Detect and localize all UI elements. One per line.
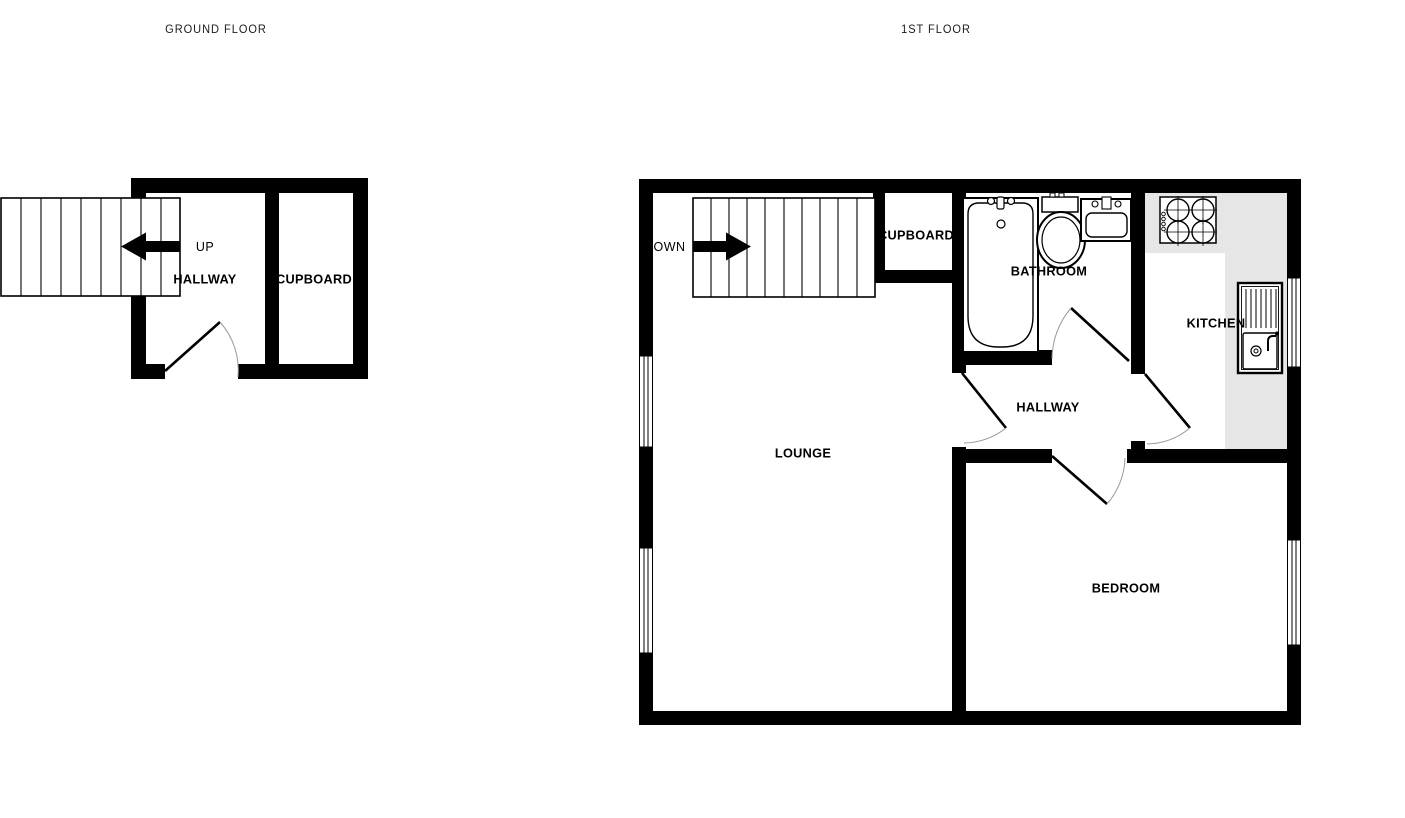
room-label-bedroom: BEDROOM: [1092, 581, 1161, 596]
window-icon: [640, 548, 653, 653]
wall: [952, 350, 966, 373]
wall: [353, 178, 368, 379]
wall: [639, 653, 653, 725]
wall: [952, 447, 966, 711]
door-leaf: [165, 322, 220, 371]
door-leaf: [1052, 456, 1107, 504]
room-label-ground-hallway: HALLWAY: [173, 272, 236, 287]
door-leaf: [1071, 308, 1129, 361]
room-label-first-cupboard: CUPBOARD: [878, 228, 954, 243]
window-icon: [640, 356, 653, 447]
wall: [131, 364, 165, 379]
door-leaf: [962, 373, 1006, 428]
hob-icon: [1160, 196, 1217, 246]
wall: [238, 364, 368, 379]
window-icon: [1288, 278, 1301, 367]
room-label-lounge: LOUNGE: [775, 446, 831, 461]
stairs-up-label: UP: [196, 240, 214, 254]
wall: [873, 270, 966, 283]
door-arc: [1147, 428, 1190, 444]
wall: [639, 711, 1301, 725]
first-floor-plan: [639, 179, 1301, 725]
bathroom-door: [1052, 308, 1129, 361]
first-floor-title: 1ST FLOOR: [901, 24, 971, 36]
floorplan-canvas: DOWN: [0, 0, 1405, 818]
floorplan-drawing: [0, 0, 1405, 818]
stairs-down-icon: [693, 198, 875, 297]
window-icon: [1288, 540, 1301, 645]
door-arc: [1052, 308, 1071, 359]
door-arc: [220, 322, 238, 377]
door-arc: [964, 428, 1006, 443]
toilet-icon: [1037, 193, 1085, 268]
room-label-ground-cupboard: CUPBOARD: [276, 272, 352, 287]
stairs-up-icon: [1, 198, 180, 296]
kitchen-door: [1145, 374, 1190, 444]
wall: [131, 178, 368, 193]
wall: [639, 179, 653, 356]
door-leaf: [1145, 374, 1190, 428]
door-arc: [1107, 458, 1125, 504]
room-label-kitchen: KITCHEN: [1187, 316, 1246, 331]
ground-floor-title: GROUND FLOOR: [165, 24, 267, 36]
wall: [952, 449, 1052, 463]
room-label-bathroom: BATHROOM: [1011, 264, 1087, 279]
lounge-door: [962, 373, 1006, 443]
wall: [1131, 441, 1145, 451]
wall: [1131, 193, 1145, 374]
bedroom-door: [1052, 456, 1125, 504]
wall: [639, 447, 653, 548]
basin-icon: [1081, 197, 1131, 241]
wall: [1287, 645, 1301, 725]
wall: [1287, 179, 1301, 278]
wall: [639, 179, 1301, 193]
room-label-first-hallway: HALLWAY: [1016, 400, 1079, 415]
ground-entrance-door: [165, 322, 238, 377]
wall: [1127, 449, 1301, 463]
